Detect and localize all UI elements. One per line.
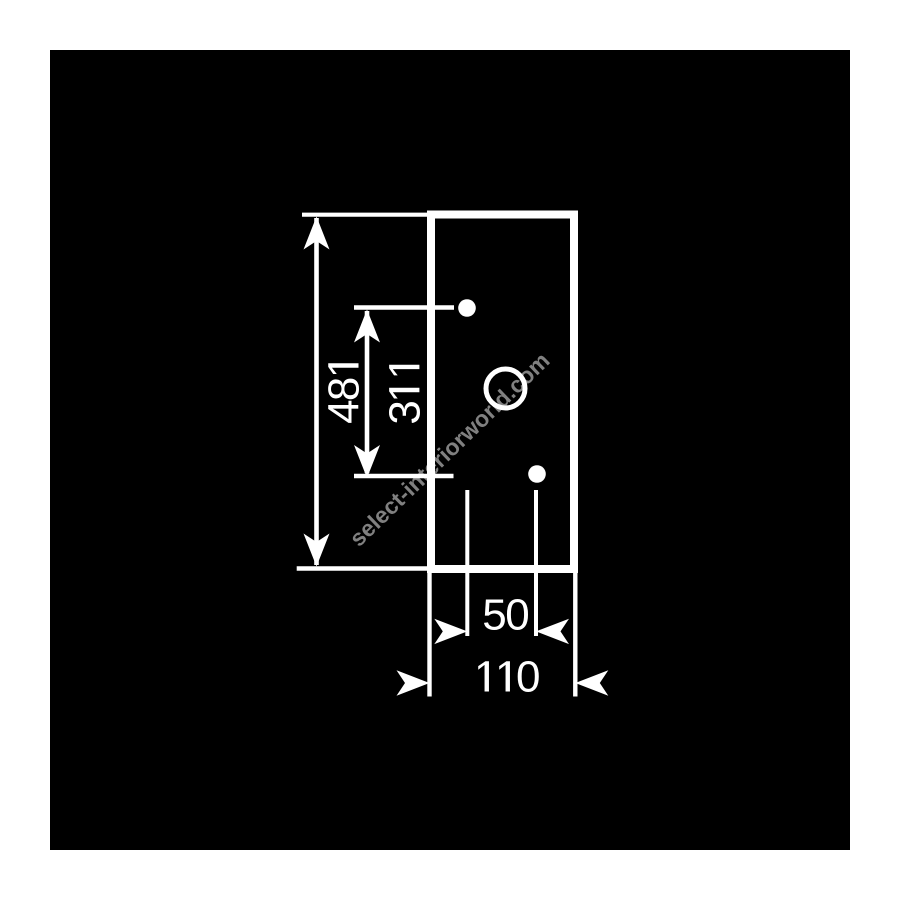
svg-text:3: 3: [380, 400, 429, 424]
svg-text:0: 0: [516, 653, 540, 702]
svg-text:4: 4: [320, 399, 369, 423]
svg-text:5: 5: [482, 591, 506, 640]
svg-text:0: 0: [505, 591, 529, 640]
svg-text:8: 8: [320, 377, 369, 401]
